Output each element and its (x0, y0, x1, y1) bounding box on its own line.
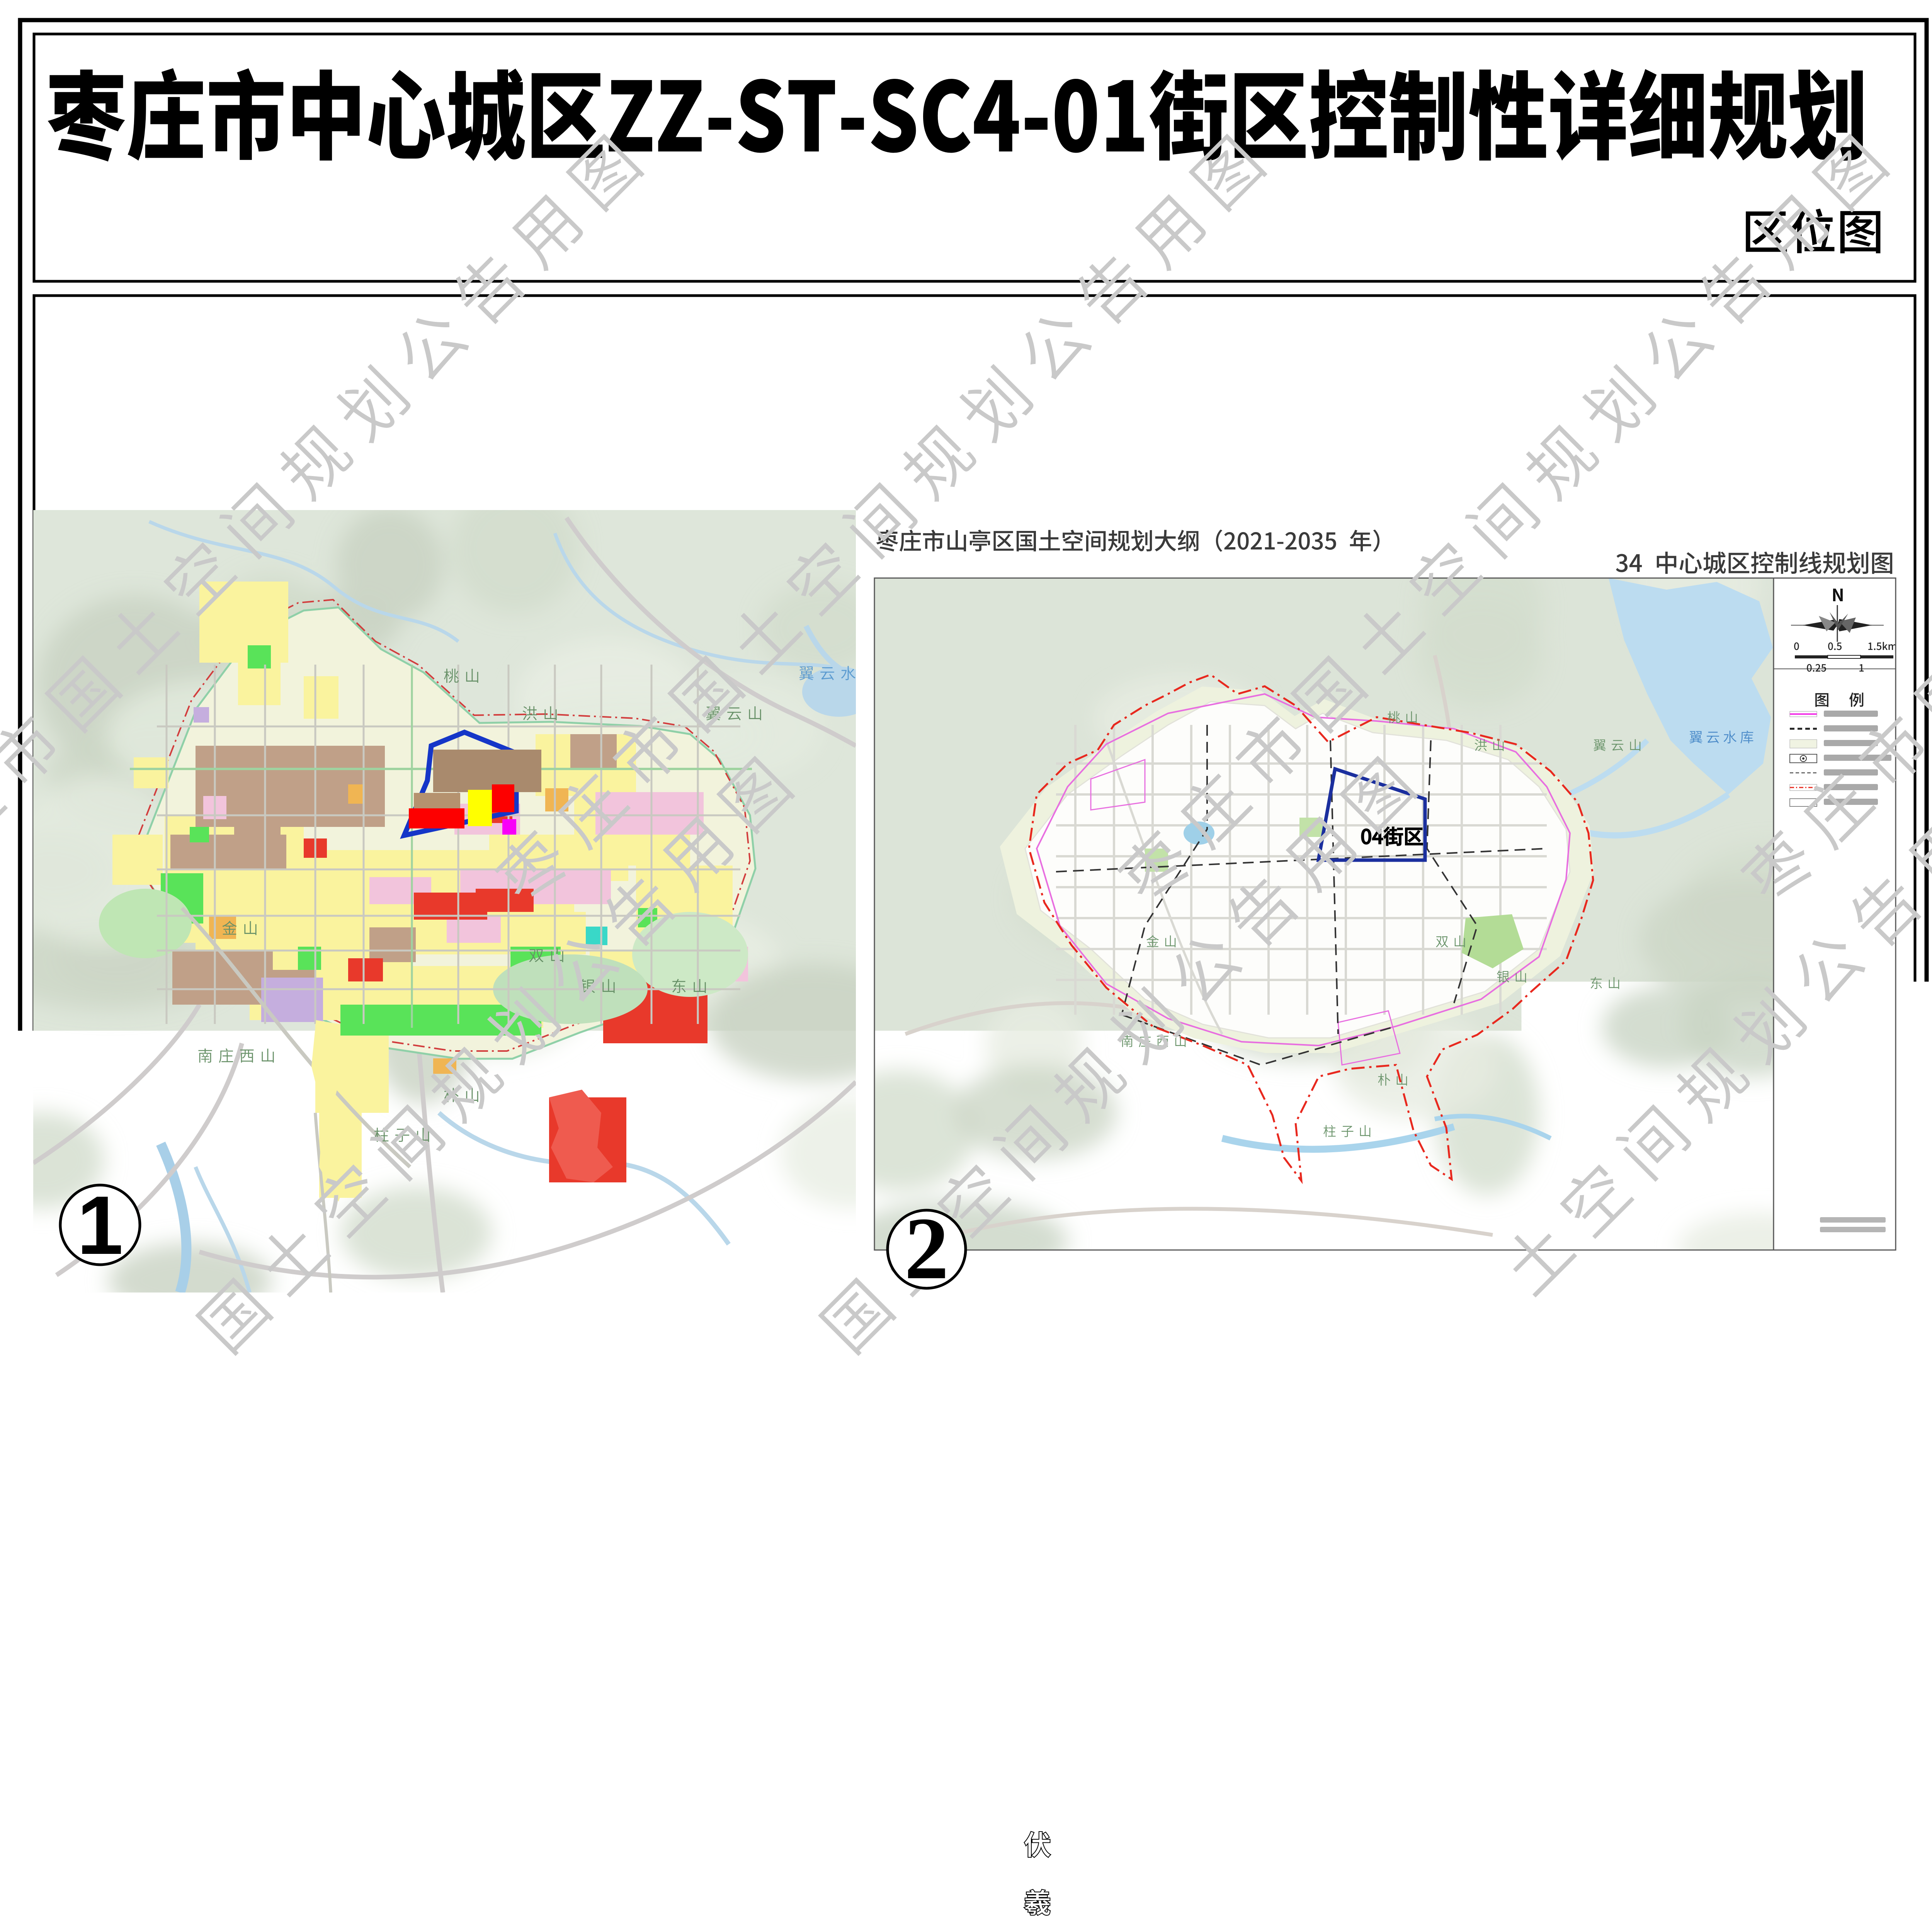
svg-text:3: 3 (213, 1615, 257, 1704)
svg-text:2: 2 (905, 1199, 949, 1298)
svg-text:1.: 1. (124, 1797, 153, 1836)
svg-text:1: 1 (111, 1502, 155, 1590)
svg-text:2: 2 (212, 1502, 256, 1590)
svg-text:1: 1 (77, 1179, 123, 1272)
